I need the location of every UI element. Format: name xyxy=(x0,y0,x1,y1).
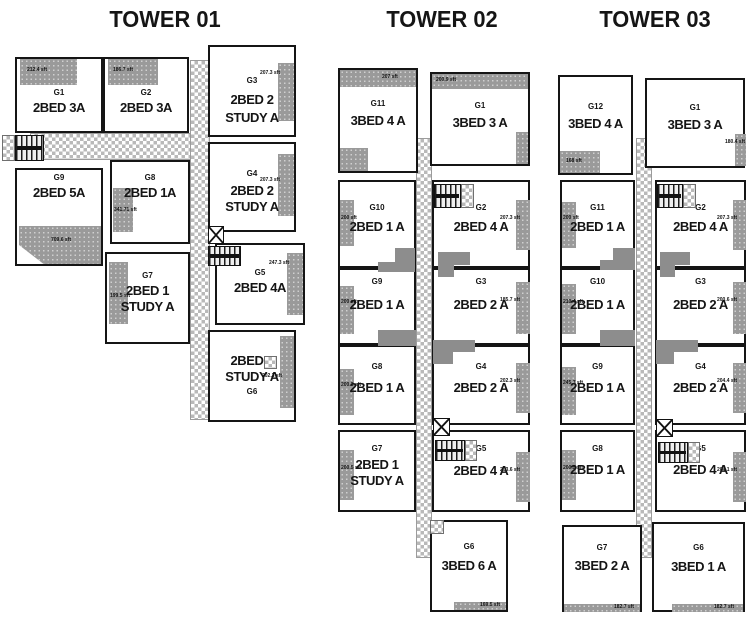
unit-id: G9 xyxy=(17,174,101,182)
unit-type-label: 3BED 1 A xyxy=(654,560,743,573)
area-label: 207 sft xyxy=(382,75,398,80)
area-label: 210.4 sft xyxy=(563,300,583,305)
service-shaft xyxy=(660,265,675,277)
unit-type-label: STUDY A xyxy=(210,111,294,124)
unit-t1-g1: 212.4 sft G1 2BED 3A xyxy=(15,57,103,133)
unit-id: G6 xyxy=(654,544,743,552)
unit-type-label: 2BED 2 xyxy=(210,354,294,367)
floor-plan-canvas: TOWER 01 212.4 sft G1 2BED 3A 186.7 sft … xyxy=(0,0,746,620)
unit-t1-g2: 186.7 sft G2 2BED 3A xyxy=(103,57,189,133)
service-shaft xyxy=(395,248,415,272)
unit-t3-g7: G7 3BED 2 A 182.7 sft xyxy=(562,525,642,612)
service-shaft xyxy=(433,352,453,364)
unit-id: G1 xyxy=(432,102,528,110)
corridor xyxy=(636,138,652,558)
area-label: 207.3 sft xyxy=(717,216,737,221)
area-label: 200.6 sft xyxy=(717,298,737,303)
unit-type-label: 2BED 3A xyxy=(105,101,187,114)
unit-id: G8 xyxy=(562,445,633,453)
service-shaft xyxy=(660,252,690,265)
unit-type-label: 3BED 3 A xyxy=(647,118,743,131)
area-label: 200 sft xyxy=(563,216,579,221)
tower-02-title: TOWER 02 xyxy=(366,6,518,33)
stairwell-checker xyxy=(465,440,477,461)
elevator-icon xyxy=(433,418,450,436)
unit-id: G1 xyxy=(17,89,101,97)
area-label: 199.5 sft xyxy=(110,294,130,299)
unit-id: G8 xyxy=(340,363,414,371)
balcony-patch xyxy=(340,148,368,171)
stairs-icon xyxy=(434,184,461,208)
unit-id: G7 xyxy=(564,544,640,552)
unit-id: G3 xyxy=(210,77,294,85)
unit-t1-g4: 207.3 sft G4 2BED 2 STUDY A xyxy=(208,142,296,232)
area-label: 212.4 sft xyxy=(27,68,47,73)
service-shaft xyxy=(600,260,614,270)
tower-01-title: TOWER 01 xyxy=(89,6,241,33)
unit-id: G1 xyxy=(647,104,743,112)
stairwell-checker xyxy=(2,135,15,161)
unit-type-label: 2BED 2 xyxy=(210,93,294,106)
unit-type-label: 2BED 1 A xyxy=(562,220,633,233)
stairwell-checker xyxy=(683,184,696,208)
unit-type-label: 3BED 4 A xyxy=(340,114,416,127)
area-label: 204.1 sft xyxy=(717,468,737,473)
area-label: 168 sft xyxy=(566,159,582,164)
unit-t2-g8: 200.3 sft G8 2BED 1 A xyxy=(338,345,416,425)
unit-id: G6 xyxy=(210,388,294,396)
unit-id: G2 xyxy=(105,89,187,97)
unit-t3-g8: 200.5 sft G8 2BED 1 A xyxy=(560,430,635,512)
area-label: 182.7 sft xyxy=(714,605,734,610)
unit-id: G9 xyxy=(340,278,414,286)
area-label: 207.3 sft xyxy=(260,71,280,76)
unit-type-label: 3BED 6 A xyxy=(432,559,506,572)
unit-id: G4 xyxy=(210,170,294,178)
area-label: 200 sft xyxy=(341,300,357,305)
area-label: 709.6 sft xyxy=(51,238,71,243)
unit-t3-g1: G1 3BED 3 A 180.4 sft xyxy=(645,78,745,168)
stairs-icon xyxy=(15,135,44,161)
unit-type-label: 2BED 4 A xyxy=(657,220,744,233)
unit-t1-g9: G9 2BED 5A 709.6 sft xyxy=(15,168,103,266)
stairs-icon xyxy=(658,442,688,463)
unit-t3-g12: G12 3BED 4 A 168 sft xyxy=(558,75,633,175)
area-label: 202.3 sft xyxy=(262,374,282,379)
unit-type-label: 2BED 2 xyxy=(210,184,294,197)
area-label: 186.7 sft xyxy=(113,68,133,73)
unit-t3-g6: G6 3BED 1 A 182.7 sft xyxy=(652,522,745,612)
unit-t2-g7: 200.5 sft G7 2BED 1 STUDY A xyxy=(338,430,416,512)
area-label: 180.4 sft xyxy=(725,140,745,145)
service-shaft xyxy=(438,265,454,277)
area-label: 185.7 sft xyxy=(500,298,520,303)
area-label: 200.3 sft xyxy=(341,383,361,388)
corridor xyxy=(30,133,193,160)
area-label: 207.3 sft xyxy=(260,178,280,183)
corridor xyxy=(190,60,210,420)
stairs-icon xyxy=(435,440,465,461)
service-shaft xyxy=(433,340,475,352)
area-label: 204.4 sft xyxy=(717,379,737,384)
unit-type-label: STUDY A xyxy=(210,200,294,213)
stairwell-checker xyxy=(688,442,700,463)
balcony-patch xyxy=(516,452,530,502)
area-label: 203.6 sft xyxy=(500,468,520,473)
unit-t1-g6: 2BED 2 STUDY A G6 202.3 sft xyxy=(208,330,296,422)
unit-type-label: 3BED 3 A xyxy=(432,116,528,129)
corridor xyxy=(416,138,432,558)
unit-type-label: STUDY A xyxy=(340,474,414,487)
unit-type-label: 2BED 5A xyxy=(17,186,101,199)
stairwell-checker xyxy=(264,356,277,369)
unit-id: G4 xyxy=(657,363,744,371)
unit-id: G9 xyxy=(562,363,633,371)
unit-type-label: 3BED 2 A xyxy=(564,559,640,572)
area-label: 169.5 sft xyxy=(480,603,500,608)
unit-id: G6 xyxy=(432,543,506,551)
balcony-patch xyxy=(516,132,528,164)
unit-id: G11 xyxy=(340,100,416,108)
unit-type-label: 2BED 1 A xyxy=(340,220,414,233)
unit-type-label: 2BED 3A xyxy=(17,101,101,114)
stairs-icon xyxy=(208,246,241,266)
stairwell-checker xyxy=(461,184,474,208)
area-label: 247.3 sft xyxy=(269,261,289,266)
area-label: 202.3 sft xyxy=(500,379,520,384)
area-label: 200 sft xyxy=(341,216,357,221)
unit-id: G10 xyxy=(340,204,414,212)
unit-t2-g3: 185.7 sft G3 2BED 2 A xyxy=(432,268,530,345)
unit-id: G3 xyxy=(657,278,744,286)
balcony-patch xyxy=(340,70,416,87)
area-label: 207.3 sft xyxy=(500,216,520,221)
unit-t2-g11: 207 sft G11 3BED 4 A xyxy=(338,68,418,173)
unit-id: G3 xyxy=(434,278,528,286)
unit-type-label: 2BED 1A xyxy=(112,186,188,199)
unit-id: G11 xyxy=(562,204,633,212)
service-shaft xyxy=(378,330,416,346)
service-shaft xyxy=(438,252,470,265)
unit-type-label: 2BED 4A xyxy=(217,281,303,294)
unit-t3-g3: 200.6 sft G3 2BED 2 A xyxy=(655,268,746,345)
stairs-icon xyxy=(657,184,683,208)
service-shaft xyxy=(656,352,674,364)
area-label: 182.7 sft xyxy=(614,605,634,610)
area-label: 200.9 sft xyxy=(436,78,456,83)
unit-id: G12 xyxy=(560,103,631,111)
unit-type-label: STUDY A xyxy=(107,300,188,313)
unit-id: G7 xyxy=(107,272,188,280)
unit-id: G10 xyxy=(562,278,633,286)
balcony-patch xyxy=(733,452,746,502)
service-shaft xyxy=(378,262,395,272)
unit-t2-g1: 200.9 sft G1 3BED 3 A xyxy=(430,72,530,166)
unit-id: G7 xyxy=(340,445,414,453)
tower-03-title: TOWER 03 xyxy=(579,6,731,33)
unit-t3-g9: 245.7 sft G9 2BED 1 A xyxy=(560,345,635,425)
elevator-icon xyxy=(656,419,673,437)
unit-type-label: 3BED 4 A xyxy=(560,117,631,130)
unit-id: G8 xyxy=(112,174,188,182)
area-label: 200.5 sft xyxy=(563,466,583,471)
elevator-icon xyxy=(208,226,224,244)
stairwell-checker xyxy=(430,520,444,534)
unit-t1-g3: 207.3 sft G3 2BED 2 STUDY A xyxy=(208,45,296,137)
area-label: 245.7 sft xyxy=(563,381,583,386)
service-shaft xyxy=(600,330,635,346)
unit-id: G5 xyxy=(217,269,303,277)
balcony-patch xyxy=(19,226,101,264)
area-label: 200.5 sft xyxy=(341,466,361,471)
unit-type-label: 2BED 4 A xyxy=(434,220,528,233)
unit-id: G4 xyxy=(434,363,528,371)
unit-t1-g8: G8 2BED 1A 341.71 sft xyxy=(110,160,190,244)
unit-t1-g7: 199.5 sft G7 2BED 1 STUDY A xyxy=(105,252,190,344)
area-label: 341.71 sft xyxy=(114,208,137,213)
service-shaft xyxy=(656,340,698,352)
service-shaft xyxy=(613,248,635,270)
